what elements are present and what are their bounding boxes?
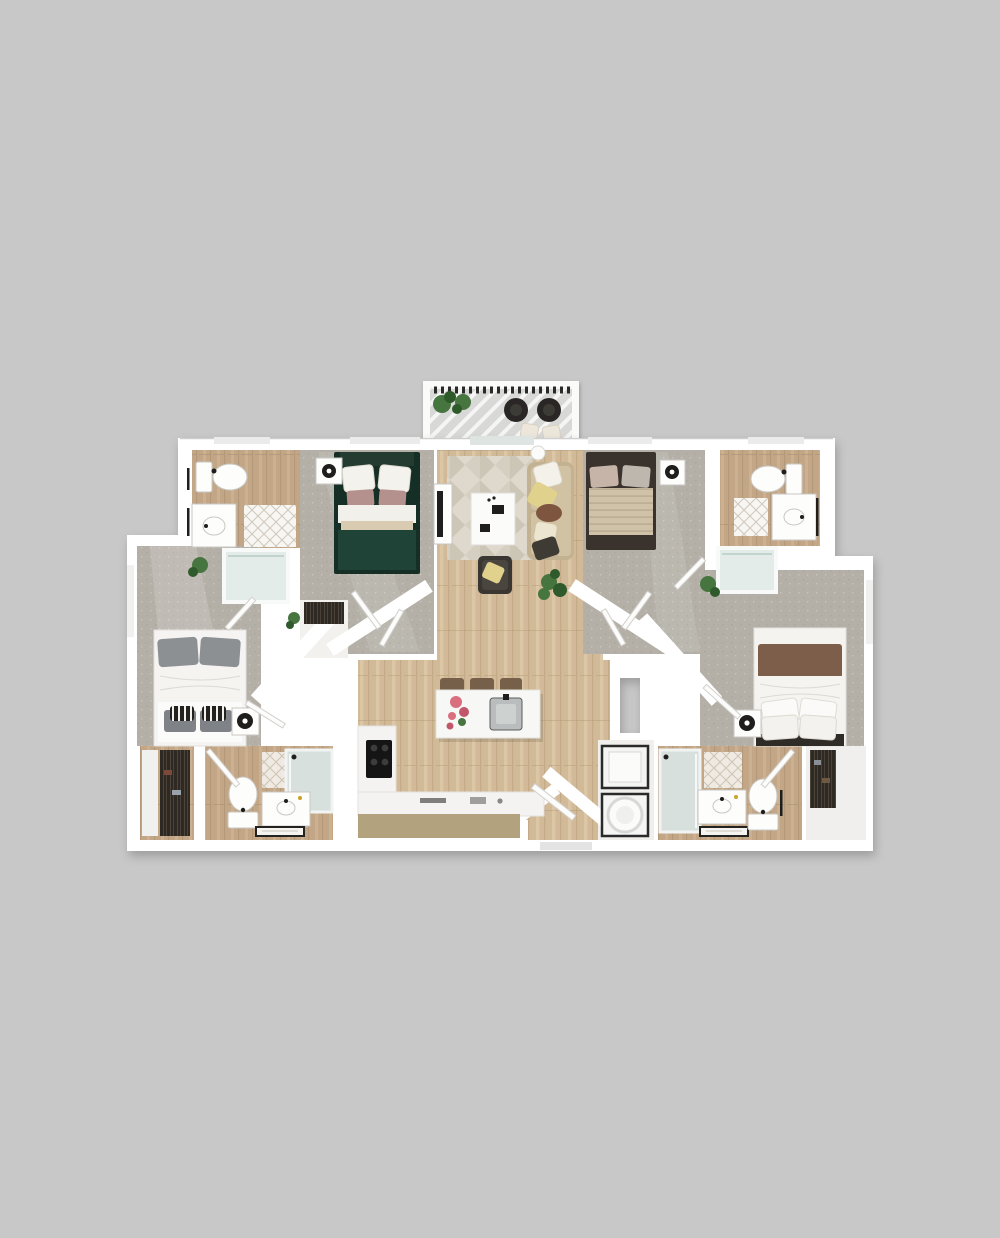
pillow xyxy=(761,715,799,740)
towel-bar xyxy=(187,468,190,490)
striped-pillow xyxy=(202,706,226,721)
tv xyxy=(437,491,443,537)
towel-bar xyxy=(187,508,190,536)
closet-shelf xyxy=(142,750,158,836)
nightstand xyxy=(316,458,342,484)
pillow xyxy=(157,637,199,668)
blanket xyxy=(589,488,653,535)
bath-mat xyxy=(256,827,304,836)
sofa xyxy=(526,461,574,561)
tub-shower-top-left xyxy=(224,550,288,602)
pillow xyxy=(589,465,619,488)
pillow xyxy=(378,464,411,492)
pillow xyxy=(621,465,651,488)
coffee-table xyxy=(471,493,515,545)
wardrobe-clothes xyxy=(304,602,344,624)
balcony xyxy=(423,381,579,443)
bed-green xyxy=(334,452,420,574)
bath-mat xyxy=(244,505,296,547)
pillow xyxy=(536,504,562,522)
cooktop xyxy=(366,740,392,778)
counter-items xyxy=(420,798,446,803)
dryer xyxy=(602,794,648,836)
closet-bottom-left xyxy=(142,750,190,836)
toilet xyxy=(748,779,778,830)
washer xyxy=(602,746,648,788)
shower-head xyxy=(664,755,669,760)
pillow xyxy=(342,464,375,492)
counter-cabinets xyxy=(358,814,520,838)
tv-console xyxy=(434,484,452,544)
toilet xyxy=(196,462,247,492)
toilet xyxy=(228,777,258,828)
walk-in-shower xyxy=(660,750,700,832)
balcony-slider xyxy=(470,436,534,445)
floor-lamp xyxy=(531,446,545,460)
striped-pillow xyxy=(170,706,194,721)
floor-plan-screenshot xyxy=(0,0,1000,1238)
vanity-sink xyxy=(772,494,816,540)
island-sink xyxy=(490,694,522,730)
closet-bottom-right xyxy=(810,750,836,808)
tile-wall xyxy=(262,752,286,788)
towel-bar xyxy=(780,790,783,816)
armchair xyxy=(478,556,512,594)
bed-brown xyxy=(754,628,846,746)
bath-mat xyxy=(734,498,768,536)
floor-plan-canvas xyxy=(0,0,1000,1238)
nightstand xyxy=(660,460,685,485)
toilet xyxy=(751,464,802,494)
bed-tan xyxy=(586,452,656,550)
bath-mat xyxy=(700,827,748,836)
vanity-sink xyxy=(262,792,310,826)
kitchen-island xyxy=(436,690,543,742)
pillow xyxy=(199,637,241,668)
vanity-sink xyxy=(192,504,236,547)
tile-wall xyxy=(704,752,742,788)
towel-bar xyxy=(816,498,819,536)
pillow xyxy=(799,715,837,740)
shower-head xyxy=(292,755,297,760)
vanity-sink xyxy=(698,790,746,824)
nightstand xyxy=(232,708,259,735)
entry-threshold xyxy=(540,842,592,850)
